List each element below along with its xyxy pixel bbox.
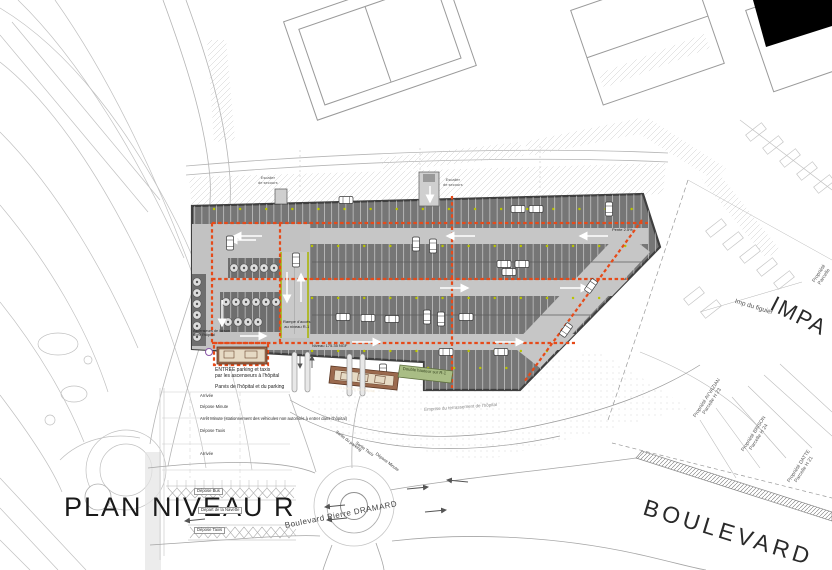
arrivee-label: Arrivée	[200, 394, 213, 399]
building-b-hatch	[598, 34, 710, 88]
site-plan: PLAN NIVEAU R Boulevard Pierre DRAMARD B…	[0, 0, 832, 570]
station-marker	[206, 349, 213, 356]
road-hatch-band	[207, 40, 235, 142]
parvis-label: Parvis de l'hôpital et du parking	[215, 385, 284, 391]
level-label: Niveau 175.35 NGF	[312, 344, 347, 349]
black-roof-building	[753, 0, 832, 47]
plan-title: PLAN NIVEAU R	[64, 492, 296, 524]
depose-bus-label: Dépose Bus	[194, 488, 223, 495]
arrivee2-label: Arrivée	[200, 452, 213, 457]
top-entry-booth	[423, 174, 435, 182]
elevators-label: Ascenseurs de liaison avec l'hôpital	[193, 329, 230, 338]
depose-minute-label: Dépose Minute	[200, 405, 228, 410]
depart-navette-label: Départ de la Navette	[198, 507, 242, 514]
slope-label: Pente 2.5%	[612, 228, 633, 233]
stair-label-left: Escalier de secours	[258, 176, 278, 185]
existing-building-a	[284, 0, 477, 120]
stair-label-top: Escalier de secours	[443, 178, 463, 187]
ramp-label: Rampe d'accès au niveau R-1	[283, 320, 310, 329]
existing-building-b	[571, 0, 725, 105]
entrance-pavilion	[217, 347, 267, 364]
stair-box	[275, 189, 287, 204]
plan-drawing	[0, 0, 832, 570]
terraces	[684, 120, 832, 318]
depose-taxis2-label: Dépose Taxis	[194, 527, 225, 534]
entree-label: ENTREE parking et taxis par les ascenseu…	[215, 368, 279, 380]
depose-taxis-label: Dépose Taxis	[200, 429, 225, 434]
arret-minute-label: Arrêt Minute (stationnement des véhicule…	[200, 417, 347, 422]
